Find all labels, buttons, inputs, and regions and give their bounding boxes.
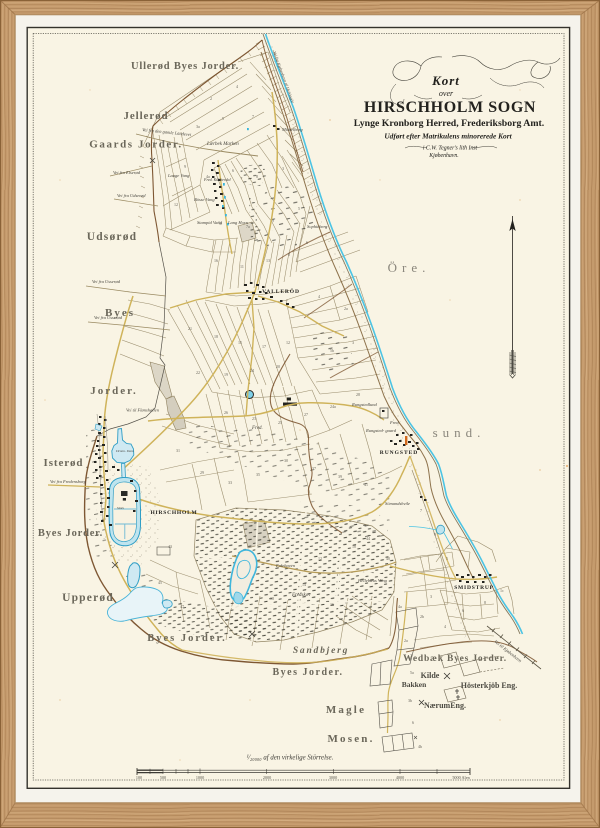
svg-text:Vei fra Fredensborg: Vei fra Fredensborg — [50, 479, 87, 484]
svg-text:Vei fra Udserød: Vei fra Udserød — [117, 193, 146, 198]
svg-text:RUNGSTED: RUNGSTED — [380, 450, 419, 456]
svg-text:45: 45 — [158, 580, 162, 585]
svg-text:Vei til Flønshøllen: Vei til Flønshøllen — [126, 408, 160, 413]
svg-text:10: 10 — [352, 544, 356, 549]
svg-text:Mosen.: Mosen. — [327, 733, 374, 745]
svg-text:Rungstedlund: Rungstedlund — [351, 402, 377, 407]
svg-text:4: 4 — [236, 84, 238, 89]
svg-text:Hösterkjöb Eng.: Hösterkjöb Eng. — [461, 681, 517, 690]
svg-text:Bakken: Bakken — [402, 680, 427, 689]
svg-text:16: 16 — [330, 602, 334, 607]
svg-text:Slots: Slots — [117, 506, 124, 510]
svg-text:29: 29 — [200, 470, 204, 475]
svg-text:Öre.: Öre. — [388, 260, 431, 275]
svg-text:Hellebæks Vang: Hellebæks Vang — [357, 578, 388, 583]
svg-text:Lang Horn: Lang Horn — [227, 220, 249, 225]
svg-text:9: 9 — [184, 164, 186, 169]
svg-text:5a: 5a — [410, 670, 414, 675]
svg-text:Upperød: Upperød — [62, 592, 114, 604]
svg-text:6: 6 — [462, 608, 464, 613]
svg-text:9: 9 — [272, 218, 274, 223]
svg-text:Udført efter Matrikulens minor: Udført efter Matrikulens minorerede Kort — [384, 132, 512, 141]
svg-text:43: 43 — [168, 544, 172, 549]
svg-text:Laage Vang: Laage Vang — [167, 173, 190, 178]
svg-text:Fred.: Fred. — [389, 420, 400, 425]
svg-text:3b: 3b — [408, 698, 412, 703]
svg-text:12: 12 — [174, 202, 178, 207]
svg-text:4a: 4a — [398, 604, 402, 609]
svg-text:4000: 4000 — [396, 775, 404, 780]
svg-text:Byes Jorder.: Byes Jorder. — [38, 528, 103, 539]
svg-text:2000: 2000 — [263, 775, 271, 780]
svg-text:Gaards Jorder.: Gaards Jorder. — [89, 139, 183, 151]
svg-text:47: 47 — [180, 604, 184, 609]
svg-text:5: 5 — [222, 116, 224, 121]
svg-text:35: 35 — [256, 472, 260, 477]
svg-text:9: 9 — [434, 532, 436, 537]
svg-text:6: 6 — [412, 720, 414, 725]
svg-text:23: 23 — [252, 416, 256, 421]
svg-text:Jorder.: Jorder. — [90, 385, 138, 397]
svg-text:Jellerød: Jellerød — [123, 110, 168, 122]
svg-text:1c: 1c — [500, 588, 504, 593]
svg-text:3: 3 — [430, 594, 432, 599]
svg-text:28: 28 — [356, 392, 360, 397]
svg-text:7: 7 — [252, 114, 254, 119]
svg-text:2b: 2b — [420, 614, 424, 619]
svg-text:4b: 4b — [418, 744, 422, 749]
svg-text:3: 3 — [352, 340, 354, 345]
svg-text:6: 6 — [232, 168, 234, 173]
svg-text:Vei fra Usserød: Vei fra Usserød — [92, 279, 121, 284]
svg-text:VALLERÖD: VALLERÖD — [262, 288, 300, 295]
svg-text:40: 40 — [386, 556, 390, 561]
svg-text:NærumEng.: NærumEng. — [424, 701, 466, 710]
svg-text:5b: 5b — [330, 348, 334, 353]
svg-text:HIRSCHHOLM: HIRSCHHOLM — [150, 510, 197, 516]
svg-text:Dronn. Dam: Dronn. Dam — [115, 449, 134, 453]
svg-text:31: 31 — [176, 448, 180, 453]
svg-text:100: 100 — [136, 775, 142, 780]
svg-text:Kjøbenhavn.: Kjøbenhavn. — [428, 153, 458, 159]
svg-text:Vei fra Elserød: Vei fra Elserød — [113, 170, 141, 175]
svg-text:12: 12 — [286, 340, 290, 345]
svg-text:Fredskov: Fredskov — [291, 593, 311, 598]
svg-text:500: 500 — [160, 775, 166, 780]
svg-text:over: over — [439, 89, 454, 98]
svg-text:5: 5 — [298, 206, 300, 211]
svg-text:2a: 2a — [344, 306, 348, 311]
svg-text:39: 39 — [338, 474, 342, 479]
svg-text:3a: 3a — [196, 124, 200, 129]
svg-text:Wedbæk Byes Jorder.: Wedbæk Byes Jorder. — [403, 654, 507, 664]
svg-text:Udsørød: Udsørød — [87, 231, 138, 243]
svg-text:Lærbek Marken: Lærbek Marken — [206, 142, 239, 147]
svg-text:25: 25 — [278, 420, 282, 425]
svg-text:8: 8 — [484, 600, 486, 605]
svg-text:33: 33 — [228, 480, 232, 485]
svg-text:26: 26 — [224, 410, 228, 415]
svg-text:Mikkelborg: Mikkelborg — [281, 127, 303, 132]
svg-text:¹⁄₂₀₀₀₀ af den virkelige Störr: ¹⁄₂₀₀₀₀ af den virkelige Störrelse. — [247, 755, 334, 762]
svg-text:3000: 3000 — [329, 775, 337, 780]
svg-text:SMIDSTRUP: SMIDSTRUP — [454, 585, 494, 591]
svg-text:21: 21 — [188, 326, 192, 331]
svg-text:8: 8 — [256, 174, 258, 179]
svg-text:Ullerød Byes Jorder.: Ullerød Byes Jorder. — [131, 61, 239, 72]
svg-text:41: 41 — [364, 482, 368, 487]
svg-text:6: 6 — [306, 240, 308, 245]
svg-text:24: 24 — [250, 368, 254, 373]
svg-text:sund.: sund. — [433, 425, 486, 440]
svg-text:20: 20 — [276, 364, 280, 369]
svg-text:17: 17 — [262, 344, 266, 349]
svg-text:Byes Jorder.: Byes Jorder. — [273, 667, 344, 678]
svg-text:Folehaven: Folehaven — [275, 563, 296, 568]
svg-text:Sophieberg: Sophieberg — [307, 224, 328, 229]
svg-text:Sandbjerg: Sandbjerg — [293, 646, 349, 656]
svg-text:30: 30 — [284, 458, 288, 463]
svg-text:Kilde: Kilde — [421, 671, 440, 680]
svg-text:2: 2 — [210, 96, 212, 101]
svg-text:18: 18 — [270, 596, 274, 601]
svg-text:22: 22 — [196, 370, 200, 375]
svg-text:Rungsted- gaard: Rungsted- gaard — [365, 428, 397, 433]
svg-text:Fred.: Fred. — [251, 426, 263, 431]
svg-text:Lynge Kronborg Herred, Frederi: Lynge Kronborg Herred, Frederiksborg Amt… — [354, 118, 545, 129]
svg-text:14: 14 — [302, 582, 306, 587]
svg-text:16: 16 — [214, 258, 218, 263]
svg-text:Byes Jorder.: Byes Jorder. — [147, 633, 227, 644]
svg-text:27: 27 — [304, 412, 308, 417]
svg-text:2a: 2a — [404, 638, 408, 643]
svg-text:HIRSCHHOLM SOGN: HIRSCHHOLM SOGN — [364, 99, 536, 116]
svg-text:7: 7 — [420, 508, 422, 513]
svg-text:8: 8 — [288, 252, 290, 257]
svg-text:19: 19 — [224, 372, 228, 377]
svg-text:3: 3 — [282, 166, 284, 171]
svg-text:11: 11 — [240, 264, 244, 269]
svg-text:i C.W. Tegner's lith Inst: i C.W. Tegner's lith Inst — [423, 146, 478, 152]
svg-text:37: 37 — [312, 466, 316, 471]
svg-text:Sömandshvile: Sömandshvile — [385, 501, 410, 506]
svg-text:5: 5 — [446, 556, 448, 561]
svg-text:13: 13 — [266, 258, 270, 263]
svg-text:4: 4 — [318, 294, 320, 299]
svg-text:4: 4 — [444, 624, 446, 629]
svg-text:Stampid Vang: Stampid Vang — [197, 220, 223, 225]
svg-text:Fred. Kübberdal: Fred. Kübberdal — [203, 177, 231, 182]
svg-text:5000 Alen: 5000 Alen — [452, 775, 470, 780]
svg-text:18: 18 — [214, 334, 218, 339]
svg-text:1000: 1000 — [196, 775, 204, 780]
svg-text:Magle: Magle — [326, 704, 366, 716]
svg-text:44: 44 — [366, 536, 370, 541]
svg-text:12: 12 — [318, 556, 322, 561]
svg-text:Vei fra Usserød: Vei fra Usserød — [94, 315, 123, 320]
svg-text:Kort: Kort — [431, 73, 460, 88]
svg-text:Bösse Vang: Bösse Vang — [194, 197, 215, 202]
svg-text:15: 15 — [238, 340, 242, 345]
svg-text:24a: 24a — [330, 404, 336, 409]
svg-text:Isterød: Isterød — [44, 457, 84, 469]
